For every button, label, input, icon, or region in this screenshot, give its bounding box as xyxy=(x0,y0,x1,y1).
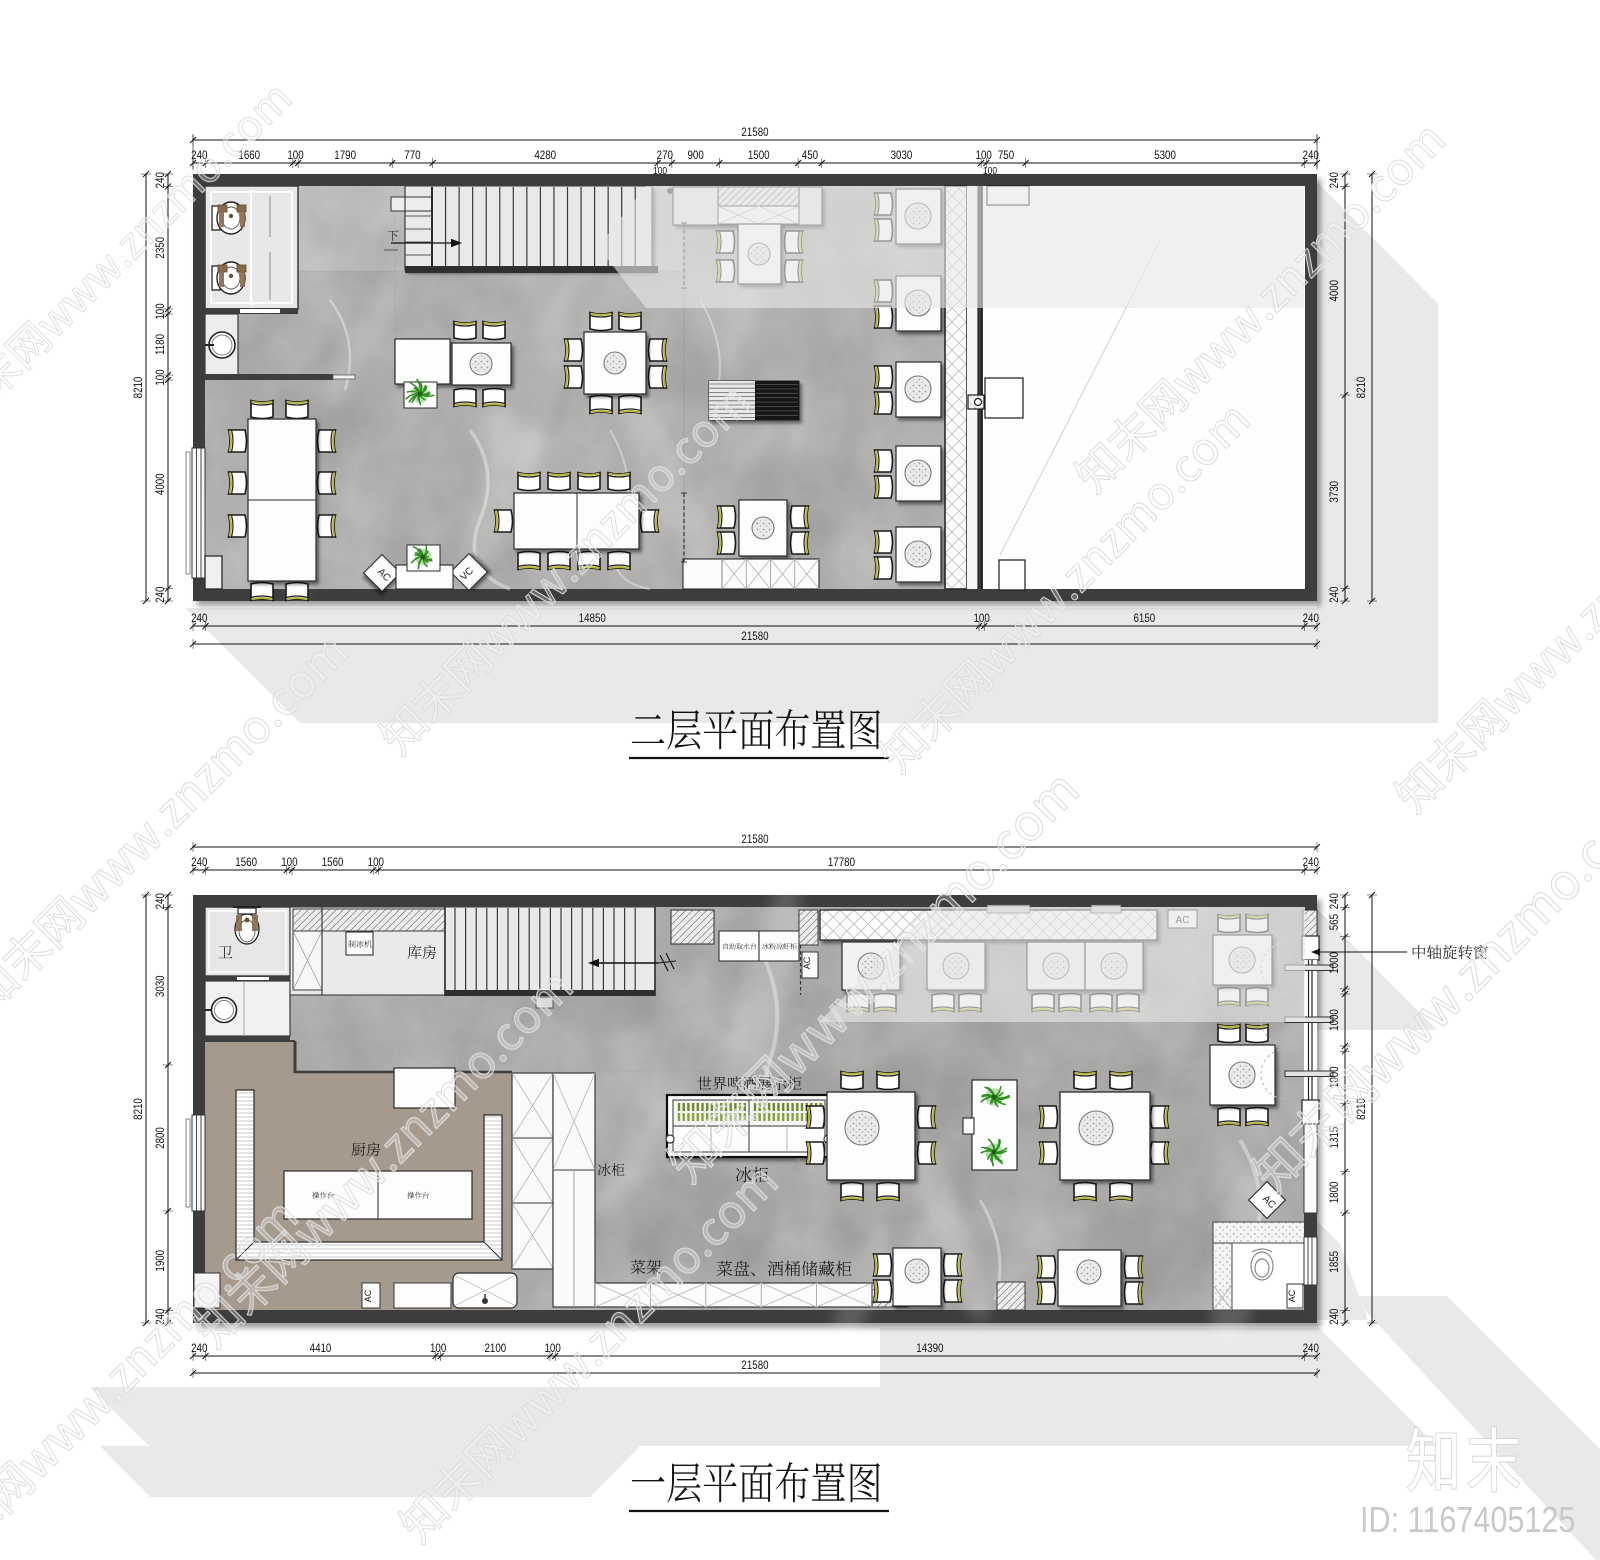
svg-text:100: 100 xyxy=(154,369,167,385)
svg-text:4000: 4000 xyxy=(1328,280,1341,302)
svg-text:100: 100 xyxy=(281,856,297,869)
svg-text:100: 100 xyxy=(653,165,667,176)
svg-text:240: 240 xyxy=(191,612,207,625)
svg-text:240: 240 xyxy=(154,172,167,188)
svg-text:3030: 3030 xyxy=(154,975,167,997)
svg-text:21580: 21580 xyxy=(741,126,768,139)
svg-text:100: 100 xyxy=(430,1342,446,1355)
svg-text:240: 240 xyxy=(1328,1309,1341,1325)
svg-text:100: 100 xyxy=(983,165,997,176)
svg-text:100: 100 xyxy=(368,856,384,869)
svg-text:2350: 2350 xyxy=(154,237,167,259)
svg-text:5300: 5300 xyxy=(1154,149,1176,162)
svg-text:AC: AC xyxy=(1287,1289,1297,1302)
svg-text:ID: 1167405125: ID: 1167405125 xyxy=(1360,1501,1575,1541)
svg-text:1560: 1560 xyxy=(235,856,257,869)
svg-text:240: 240 xyxy=(1303,856,1319,869)
svg-text:AC: AC xyxy=(363,1289,373,1302)
svg-text:240: 240 xyxy=(1303,612,1319,625)
svg-text:900: 900 xyxy=(687,149,703,162)
svg-text:240: 240 xyxy=(1328,587,1341,603)
svg-text:1500: 1500 xyxy=(748,149,770,162)
svg-text:17780: 17780 xyxy=(828,856,855,869)
svg-text:1800: 1800 xyxy=(1328,1181,1341,1203)
svg-text:1560: 1560 xyxy=(322,856,344,869)
svg-text:8210: 8210 xyxy=(132,1098,145,1120)
svg-text:4280: 4280 xyxy=(534,149,556,162)
svg-text:14850: 14850 xyxy=(579,612,606,625)
svg-text:1855: 1855 xyxy=(1328,1251,1341,1273)
svg-text:1900: 1900 xyxy=(154,1250,167,1272)
svg-text:1000: 1000 xyxy=(1328,1009,1341,1031)
svg-text:2100: 2100 xyxy=(484,1342,506,1355)
svg-text:4410: 4410 xyxy=(310,1342,332,1355)
svg-text:21580: 21580 xyxy=(741,833,768,846)
svg-text:3030: 3030 xyxy=(891,149,913,162)
svg-text:100: 100 xyxy=(973,612,989,625)
svg-text:240: 240 xyxy=(191,856,207,869)
svg-text:770: 770 xyxy=(404,149,420,162)
svg-text:21580: 21580 xyxy=(741,1359,768,1372)
svg-text:1000: 1000 xyxy=(1328,952,1341,974)
svg-text:6150: 6150 xyxy=(1133,612,1155,625)
svg-text:240: 240 xyxy=(1328,172,1341,188)
svg-text:240: 240 xyxy=(1328,893,1341,909)
svg-text:8210: 8210 xyxy=(132,377,145,399)
svg-text:100: 100 xyxy=(287,149,303,162)
svg-text:21580: 21580 xyxy=(741,630,768,643)
svg-text:100: 100 xyxy=(976,149,992,162)
svg-text:240: 240 xyxy=(191,1342,207,1355)
svg-text:750: 750 xyxy=(998,149,1014,162)
svg-text:1180: 1180 xyxy=(154,334,167,355)
svg-text:270: 270 xyxy=(657,149,673,162)
svg-text:AC: AC xyxy=(802,956,812,969)
svg-text:14390: 14390 xyxy=(916,1342,943,1355)
svg-text:100: 100 xyxy=(544,1342,560,1355)
svg-text:240: 240 xyxy=(154,893,167,909)
svg-text:100: 100 xyxy=(154,303,167,319)
svg-text:450: 450 xyxy=(802,149,818,162)
svg-text:240: 240 xyxy=(1303,149,1319,162)
svg-text:240: 240 xyxy=(1303,1342,1319,1355)
svg-text:1790: 1790 xyxy=(334,149,356,162)
svg-text:2800: 2800 xyxy=(154,1127,167,1149)
svg-text:565: 565 xyxy=(1328,914,1341,930)
svg-text:4000: 4000 xyxy=(154,473,167,495)
svg-text:240: 240 xyxy=(154,587,167,603)
svg-text:3730: 3730 xyxy=(1328,481,1341,503)
svg-text:8210: 8210 xyxy=(1355,377,1368,399)
